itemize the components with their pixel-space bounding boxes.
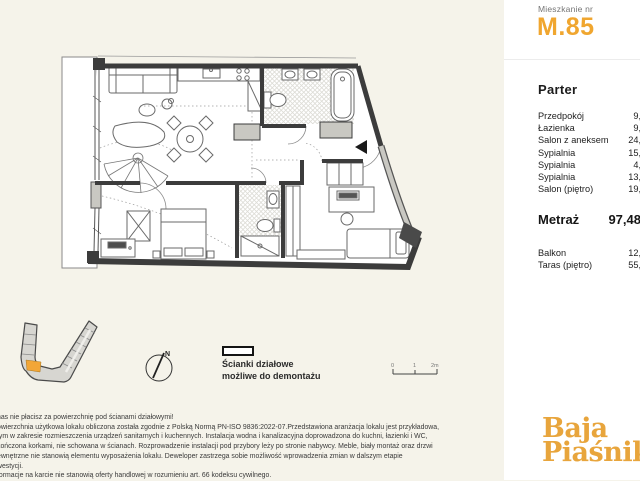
footnote-line: kończona korkami, nie schowana w ścianac… <box>0 442 439 452</box>
extra-row: Taras (piętro) 55, <box>538 259 640 271</box>
extra-area-list: Balkon 12, Taras (piętro) 55, <box>538 247 640 271</box>
highlighted-unit <box>26 360 41 372</box>
room-row: Sypialnia 13, <box>538 171 640 183</box>
room-area-value: 4, <box>633 159 640 171</box>
room-area-value: 15, <box>628 147 640 159</box>
legend-text-line2: możliwe do demontażu <box>222 371 321 381</box>
sofa <box>109 67 177 93</box>
footnote-line: formacje na karcie nie stanowią oferty h… <box>0 471 439 481</box>
legend: Ścianki działowe możliwe do demontażu <box>222 347 321 381</box>
room-label: Salon z aneksem <box>538 134 608 146</box>
room-row: Salon z aneksem 24, <box>538 134 640 146</box>
room-label: Przedpokój <box>538 110 584 122</box>
north-compass-icon: N <box>146 351 172 381</box>
room-row: Sypialnia 15, <box>538 147 640 159</box>
footnote-line: ewnętrzne nie stanowią elementu wyposaże… <box>0 452 439 462</box>
room-area-value: 9, <box>633 122 640 134</box>
room-area-value: 9, <box>633 110 640 122</box>
footnote-line: nas nie płacisz za powierzchnię pod ścia… <box>0 413 439 423</box>
room-label: Sypialnia <box>538 147 575 159</box>
room-label: Sypialnia <box>538 159 575 171</box>
total-area-value: 97,48 <box>608 212 640 227</box>
floor-heading: Parter <box>538 82 577 97</box>
apartment-number: M.85 <box>537 13 595 42</box>
room-row: Przedpokój 9, <box>538 110 640 122</box>
legal-footnotes: nas nie płacisz za powierzchnię pod ścia… <box>0 413 439 481</box>
compass-label: N <box>165 351 170 358</box>
room-label: Sypialnia <box>538 171 575 183</box>
extra-label: Taras (piętro) <box>538 259 592 271</box>
apartment-card-page: { "colors": { "background": "#F5F3EA", "… <box>0 0 640 480</box>
total-area-row: Metraż 97,48 <box>538 212 640 227</box>
legend-text-line1: Ścianki działowe <box>222 358 294 369</box>
room-row: Łazienka 9, <box>538 122 640 134</box>
scale-bar: 0 1 2m <box>391 363 439 374</box>
logo-line2: Piaśniki <box>542 441 640 465</box>
room-row: Sypialnia 4, <box>538 159 640 171</box>
extra-value: 55, <box>628 259 640 271</box>
developer-logo: Baja Piaśniki <box>542 417 640 465</box>
legend-swatch <box>223 347 253 355</box>
total-area-label: Metraż <box>538 212 579 227</box>
sidebar-divider <box>504 59 640 60</box>
scale-tick-1: 1 <box>413 363 416 369</box>
apartment-info-sidebar: Mieszkanie nr M.85 Parter Przedpokój 9, … <box>504 0 640 480</box>
room-row: Salon (piętro) 19, <box>538 183 640 195</box>
extra-value: 12, <box>628 247 640 259</box>
room-area-value: 13, <box>628 171 640 183</box>
room-area-value: 24, <box>628 134 640 146</box>
footnote-line: tym w zakresie rozmieszczenia urządzeń s… <box>0 432 439 442</box>
site-minimap <box>21 321 97 382</box>
footnote-line: owierzchnia użytkowa lokalu obliczona zo… <box>0 423 439 433</box>
room-area-list: Przedpokój 9, Łazienka 9, Salon z anekse… <box>538 110 640 195</box>
curved-sofa <box>113 122 165 147</box>
extra-row: Balkon 12, <box>538 247 640 259</box>
floor-plan-drawing: N Ścianki działowe możliwe do demontażu … <box>0 0 504 480</box>
footnote-line: westycji. <box>0 462 439 472</box>
scale-tick-0: 0 <box>391 363 394 369</box>
room-label: Łazienka <box>538 122 575 134</box>
scale-tick-2: 2m <box>431 363 439 369</box>
room-label: Salon (piętro) <box>538 183 593 195</box>
room-area-value: 19, <box>628 183 640 195</box>
extra-label: Balkon <box>538 247 566 259</box>
